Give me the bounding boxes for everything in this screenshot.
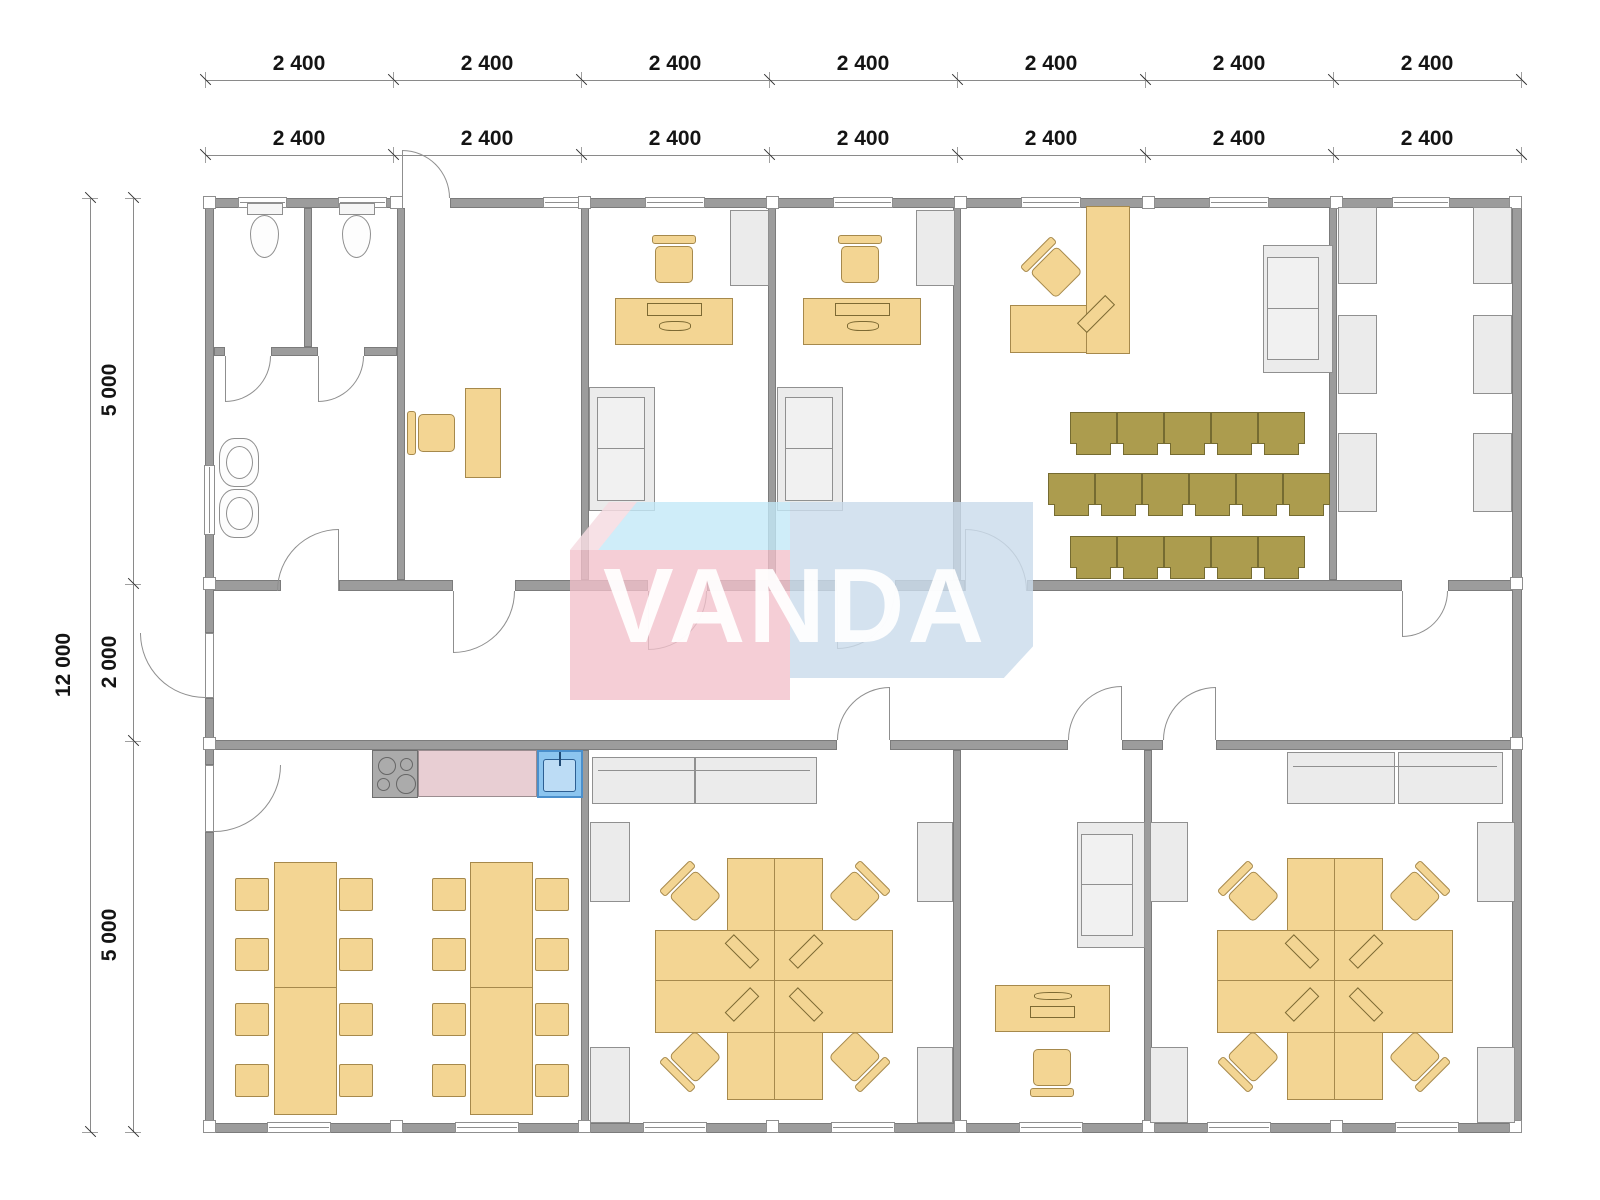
desk-divider bbox=[774, 859, 775, 1099]
dim-label: 2 400 bbox=[254, 127, 344, 151]
cabinet-counter bbox=[695, 757, 817, 804]
module-joint bbox=[203, 577, 216, 590]
exterior-wall-right bbox=[1512, 198, 1522, 1133]
dim-label: 5 000 bbox=[98, 909, 122, 962]
window bbox=[1019, 1122, 1083, 1133]
corridor-wall-bottom bbox=[1216, 740, 1513, 750]
chair-seat bbox=[1033, 1049, 1071, 1086]
cabinet bbox=[1150, 1047, 1188, 1123]
office-chair bbox=[1216, 1026, 1284, 1094]
window bbox=[833, 197, 893, 208]
module-joint bbox=[203, 737, 216, 750]
dining-chair bbox=[432, 1003, 466, 1036]
desk-divider bbox=[656, 980, 892, 981]
training-chair bbox=[1117, 536, 1164, 568]
cabinet bbox=[1473, 315, 1512, 394]
door-swing-arc bbox=[1402, 591, 1448, 637]
corridor-wall-bottom bbox=[1122, 740, 1163, 750]
dining-chair bbox=[235, 1003, 269, 1036]
training-chair bbox=[1211, 412, 1258, 444]
wall-vertical bbox=[953, 750, 961, 1123]
sofa-divider bbox=[1267, 308, 1319, 309]
watermark-text: VANDA bbox=[560, 550, 1030, 666]
module-joint bbox=[1510, 577, 1523, 590]
cabinet bbox=[1477, 1047, 1515, 1123]
dining-chair bbox=[235, 1064, 269, 1097]
dining-chair bbox=[432, 938, 466, 971]
chair-backrest bbox=[838, 235, 882, 244]
dim-label: 2 000 bbox=[98, 636, 122, 689]
door-swing-arc bbox=[277, 529, 339, 591]
door-swing-arc bbox=[318, 356, 364, 402]
dim-label: 2 400 bbox=[630, 127, 720, 151]
module-joint bbox=[390, 1120, 403, 1133]
wall-wc-bottom bbox=[271, 347, 318, 356]
cabinet-counter bbox=[1287, 752, 1395, 804]
training-chair bbox=[1070, 412, 1117, 444]
dim-label: 2 400 bbox=[1382, 52, 1472, 76]
dim-line-top-outer bbox=[205, 80, 1522, 81]
chair-backrest bbox=[652, 235, 696, 244]
cabinet bbox=[916, 210, 955, 286]
training-chair bbox=[1258, 536, 1305, 568]
door-swing-arc bbox=[1163, 687, 1216, 740]
office-chair bbox=[1216, 859, 1284, 927]
door-swing-arc bbox=[453, 591, 515, 653]
dim-label: 2 400 bbox=[630, 52, 720, 76]
office-chair bbox=[1019, 235, 1087, 303]
office-chair bbox=[1029, 1047, 1075, 1097]
dim-label: 2 400 bbox=[442, 52, 532, 76]
cabinet bbox=[917, 1047, 953, 1123]
cabinet bbox=[1338, 315, 1377, 394]
office-chair bbox=[651, 235, 697, 285]
toilet-tank bbox=[247, 203, 283, 215]
exterior-wall-left bbox=[205, 698, 214, 765]
dining-chair bbox=[535, 878, 569, 911]
cabinet bbox=[1473, 433, 1512, 512]
monitor-icon bbox=[835, 303, 890, 316]
dining-chair bbox=[339, 878, 373, 911]
office-chair bbox=[837, 235, 883, 285]
cabinet bbox=[1338, 207, 1377, 284]
door-swing-arc bbox=[837, 687, 890, 740]
module-joint bbox=[1142, 196, 1155, 209]
dining-table bbox=[274, 862, 337, 1115]
keyboard-icon bbox=[1034, 992, 1072, 1000]
door-leaf bbox=[205, 633, 214, 698]
sofa-cushions bbox=[785, 397, 833, 501]
monitor-icon bbox=[647, 303, 702, 316]
cabinet bbox=[1473, 207, 1512, 284]
door-swing-arc bbox=[140, 633, 205, 698]
dim-label: 2 400 bbox=[254, 52, 344, 76]
kitchen-counter bbox=[418, 750, 537, 797]
toilet-bowl bbox=[250, 215, 279, 258]
monitor-icon bbox=[1030, 1006, 1075, 1018]
desk-divider bbox=[1334, 859, 1335, 1099]
keyboard-icon bbox=[847, 321, 879, 331]
cabinet bbox=[1150, 822, 1188, 902]
training-chair bbox=[1095, 473, 1142, 505]
corridor-wall-top bbox=[1027, 580, 1402, 591]
module-joint bbox=[1330, 1120, 1343, 1133]
dim-label: 2 400 bbox=[1006, 127, 1096, 151]
cabinet bbox=[730, 210, 769, 286]
chair-seat bbox=[841, 246, 879, 283]
cabinet-counter bbox=[592, 757, 695, 804]
dim-label: 2 400 bbox=[442, 127, 532, 151]
wall-vertical bbox=[397, 208, 405, 580]
training-chair bbox=[1164, 412, 1211, 444]
training-chair bbox=[1048, 473, 1095, 505]
toilet-bowl bbox=[342, 215, 371, 258]
sofa-divider bbox=[597, 448, 645, 449]
window bbox=[455, 1122, 519, 1133]
sofa-divider bbox=[785, 448, 833, 449]
corridor-wall-top bbox=[339, 580, 453, 591]
desk-divider bbox=[1218, 980, 1452, 981]
chair-seat bbox=[655, 246, 693, 283]
dining-chair bbox=[339, 938, 373, 971]
office-chair bbox=[658, 1026, 726, 1094]
dining-chair bbox=[535, 1003, 569, 1036]
cabinet bbox=[917, 822, 953, 902]
window bbox=[643, 1122, 707, 1133]
keyboard-icon bbox=[659, 321, 691, 331]
office-chair bbox=[658, 859, 726, 927]
dining-chair bbox=[535, 938, 569, 971]
corridor-wall-bottom bbox=[214, 740, 837, 750]
window bbox=[1395, 1122, 1459, 1133]
sofa-divider bbox=[1081, 884, 1133, 885]
counter-line bbox=[1293, 766, 1497, 767]
training-chair bbox=[1070, 536, 1117, 568]
corridor-wall-bottom bbox=[890, 740, 1068, 750]
sink-basin bbox=[226, 497, 253, 530]
chair-seat bbox=[418, 414, 455, 452]
exterior-wall-left bbox=[205, 832, 214, 1133]
dining-chair bbox=[235, 878, 269, 911]
module-joint bbox=[203, 1120, 216, 1133]
sink-basin bbox=[226, 446, 253, 479]
module-joint bbox=[954, 1120, 967, 1133]
dim-label: 2 400 bbox=[1194, 127, 1284, 151]
window bbox=[645, 197, 705, 208]
dining-chair bbox=[339, 1064, 373, 1097]
desk bbox=[465, 388, 501, 478]
dining-table bbox=[470, 862, 533, 1115]
dim-label: 2 400 bbox=[1382, 127, 1472, 151]
module-joint bbox=[203, 196, 216, 209]
window bbox=[1209, 197, 1269, 208]
dining-chair bbox=[432, 1064, 466, 1097]
wall-vertical bbox=[581, 750, 589, 1123]
office-chair bbox=[824, 1026, 892, 1094]
table-divider bbox=[275, 987, 336, 988]
module-joint bbox=[766, 196, 779, 209]
corridor-wall-top bbox=[1448, 580, 1513, 591]
toilet-tank bbox=[339, 203, 375, 215]
training-chair bbox=[1189, 473, 1236, 505]
exterior-wall-left bbox=[205, 198, 214, 633]
office-chair bbox=[1384, 1026, 1452, 1094]
wall-wc-bottom bbox=[214, 347, 225, 356]
training-chair bbox=[1164, 536, 1211, 568]
cabinet bbox=[590, 1047, 630, 1123]
training-chair bbox=[1142, 473, 1189, 505]
door-leaf bbox=[205, 765, 214, 832]
window bbox=[1392, 197, 1450, 208]
training-chair bbox=[1258, 412, 1305, 444]
window bbox=[1207, 1122, 1271, 1133]
window bbox=[1021, 197, 1081, 208]
training-chair bbox=[1283, 473, 1330, 505]
office-chair bbox=[824, 859, 892, 927]
module-joint bbox=[766, 1120, 779, 1133]
dining-chair bbox=[432, 878, 466, 911]
window bbox=[204, 465, 215, 535]
module-joint bbox=[578, 196, 591, 209]
dim-label: 2 400 bbox=[1006, 52, 1096, 76]
cabinet bbox=[590, 822, 630, 902]
window bbox=[831, 1122, 895, 1133]
dim-label: 5 000 bbox=[98, 364, 122, 417]
chair-backrest bbox=[1030, 1088, 1074, 1097]
door-swing-arc bbox=[214, 765, 281, 832]
sofa-cushions bbox=[597, 397, 645, 501]
training-chair bbox=[1236, 473, 1283, 505]
stove-burner bbox=[400, 758, 413, 771]
training-chair bbox=[1117, 412, 1164, 444]
stove-burner bbox=[396, 774, 416, 794]
faucet-icon bbox=[559, 752, 561, 766]
dining-chair bbox=[339, 1003, 373, 1036]
sofa-cushions bbox=[1081, 834, 1133, 936]
office-chair bbox=[1384, 859, 1452, 927]
table-divider bbox=[471, 987, 532, 988]
dining-chair bbox=[535, 1064, 569, 1097]
door-swing-arc bbox=[225, 356, 271, 402]
dim-line-left-inner bbox=[133, 198, 134, 1133]
training-chair bbox=[1211, 536, 1258, 568]
wall-wc-partition bbox=[304, 208, 312, 347]
cabinet-counter bbox=[1398, 752, 1503, 804]
wall-wc-bottom bbox=[364, 347, 397, 356]
module-joint bbox=[954, 196, 967, 209]
module-joint bbox=[1510, 737, 1523, 750]
cabinet bbox=[1477, 822, 1515, 902]
dim-label: 12 000 bbox=[52, 633, 76, 697]
floor-plan: 2 400 2 400 2 400 2 400 2 400 2 400 2 40… bbox=[0, 0, 1600, 1200]
dining-chair bbox=[235, 938, 269, 971]
stove-burner bbox=[377, 778, 390, 791]
chair-backrest bbox=[407, 411, 416, 455]
door-swing-arc bbox=[402, 150, 450, 198]
dim-label: 2 400 bbox=[818, 127, 908, 151]
stove-burner bbox=[378, 757, 396, 775]
corridor-wall-top bbox=[214, 580, 281, 591]
office-chair bbox=[407, 410, 457, 456]
door-swing-arc bbox=[1068, 686, 1122, 740]
dim-line-left-outer bbox=[90, 198, 91, 1133]
dim-label: 2 400 bbox=[818, 52, 908, 76]
wall-vertical bbox=[581, 208, 589, 580]
counter-line bbox=[598, 770, 810, 771]
window bbox=[267, 1122, 331, 1133]
cabinet bbox=[1338, 433, 1377, 512]
dim-label: 2 400 bbox=[1194, 52, 1284, 76]
